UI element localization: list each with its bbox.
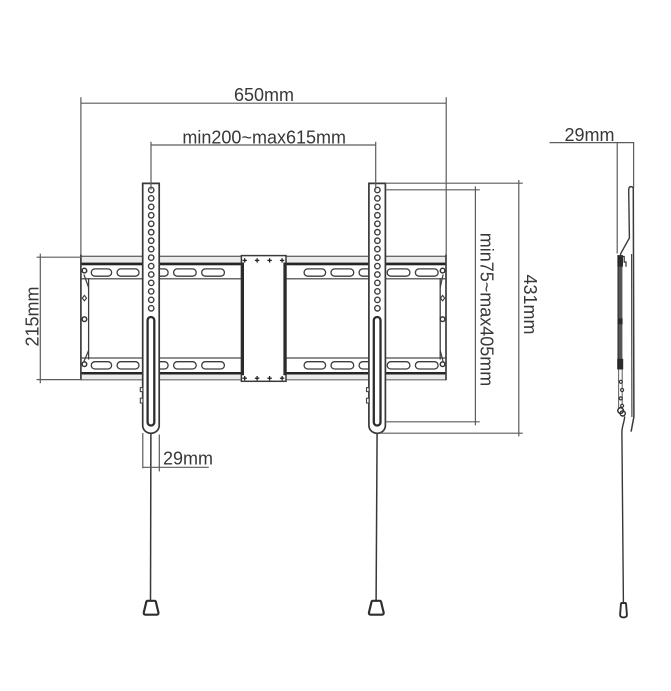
svg-text:29mm: 29mm (163, 448, 213, 468)
svg-text:650mm: 650mm (234, 85, 294, 105)
svg-text:215mm: 215mm (22, 286, 42, 346)
svg-text:29mm: 29mm (564, 125, 614, 145)
svg-text:431mm: 431mm (520, 274, 540, 334)
svg-text:min75~max405mm: min75~max405mm (477, 233, 497, 387)
svg-text:min200~max615mm: min200~max615mm (182, 128, 346, 148)
